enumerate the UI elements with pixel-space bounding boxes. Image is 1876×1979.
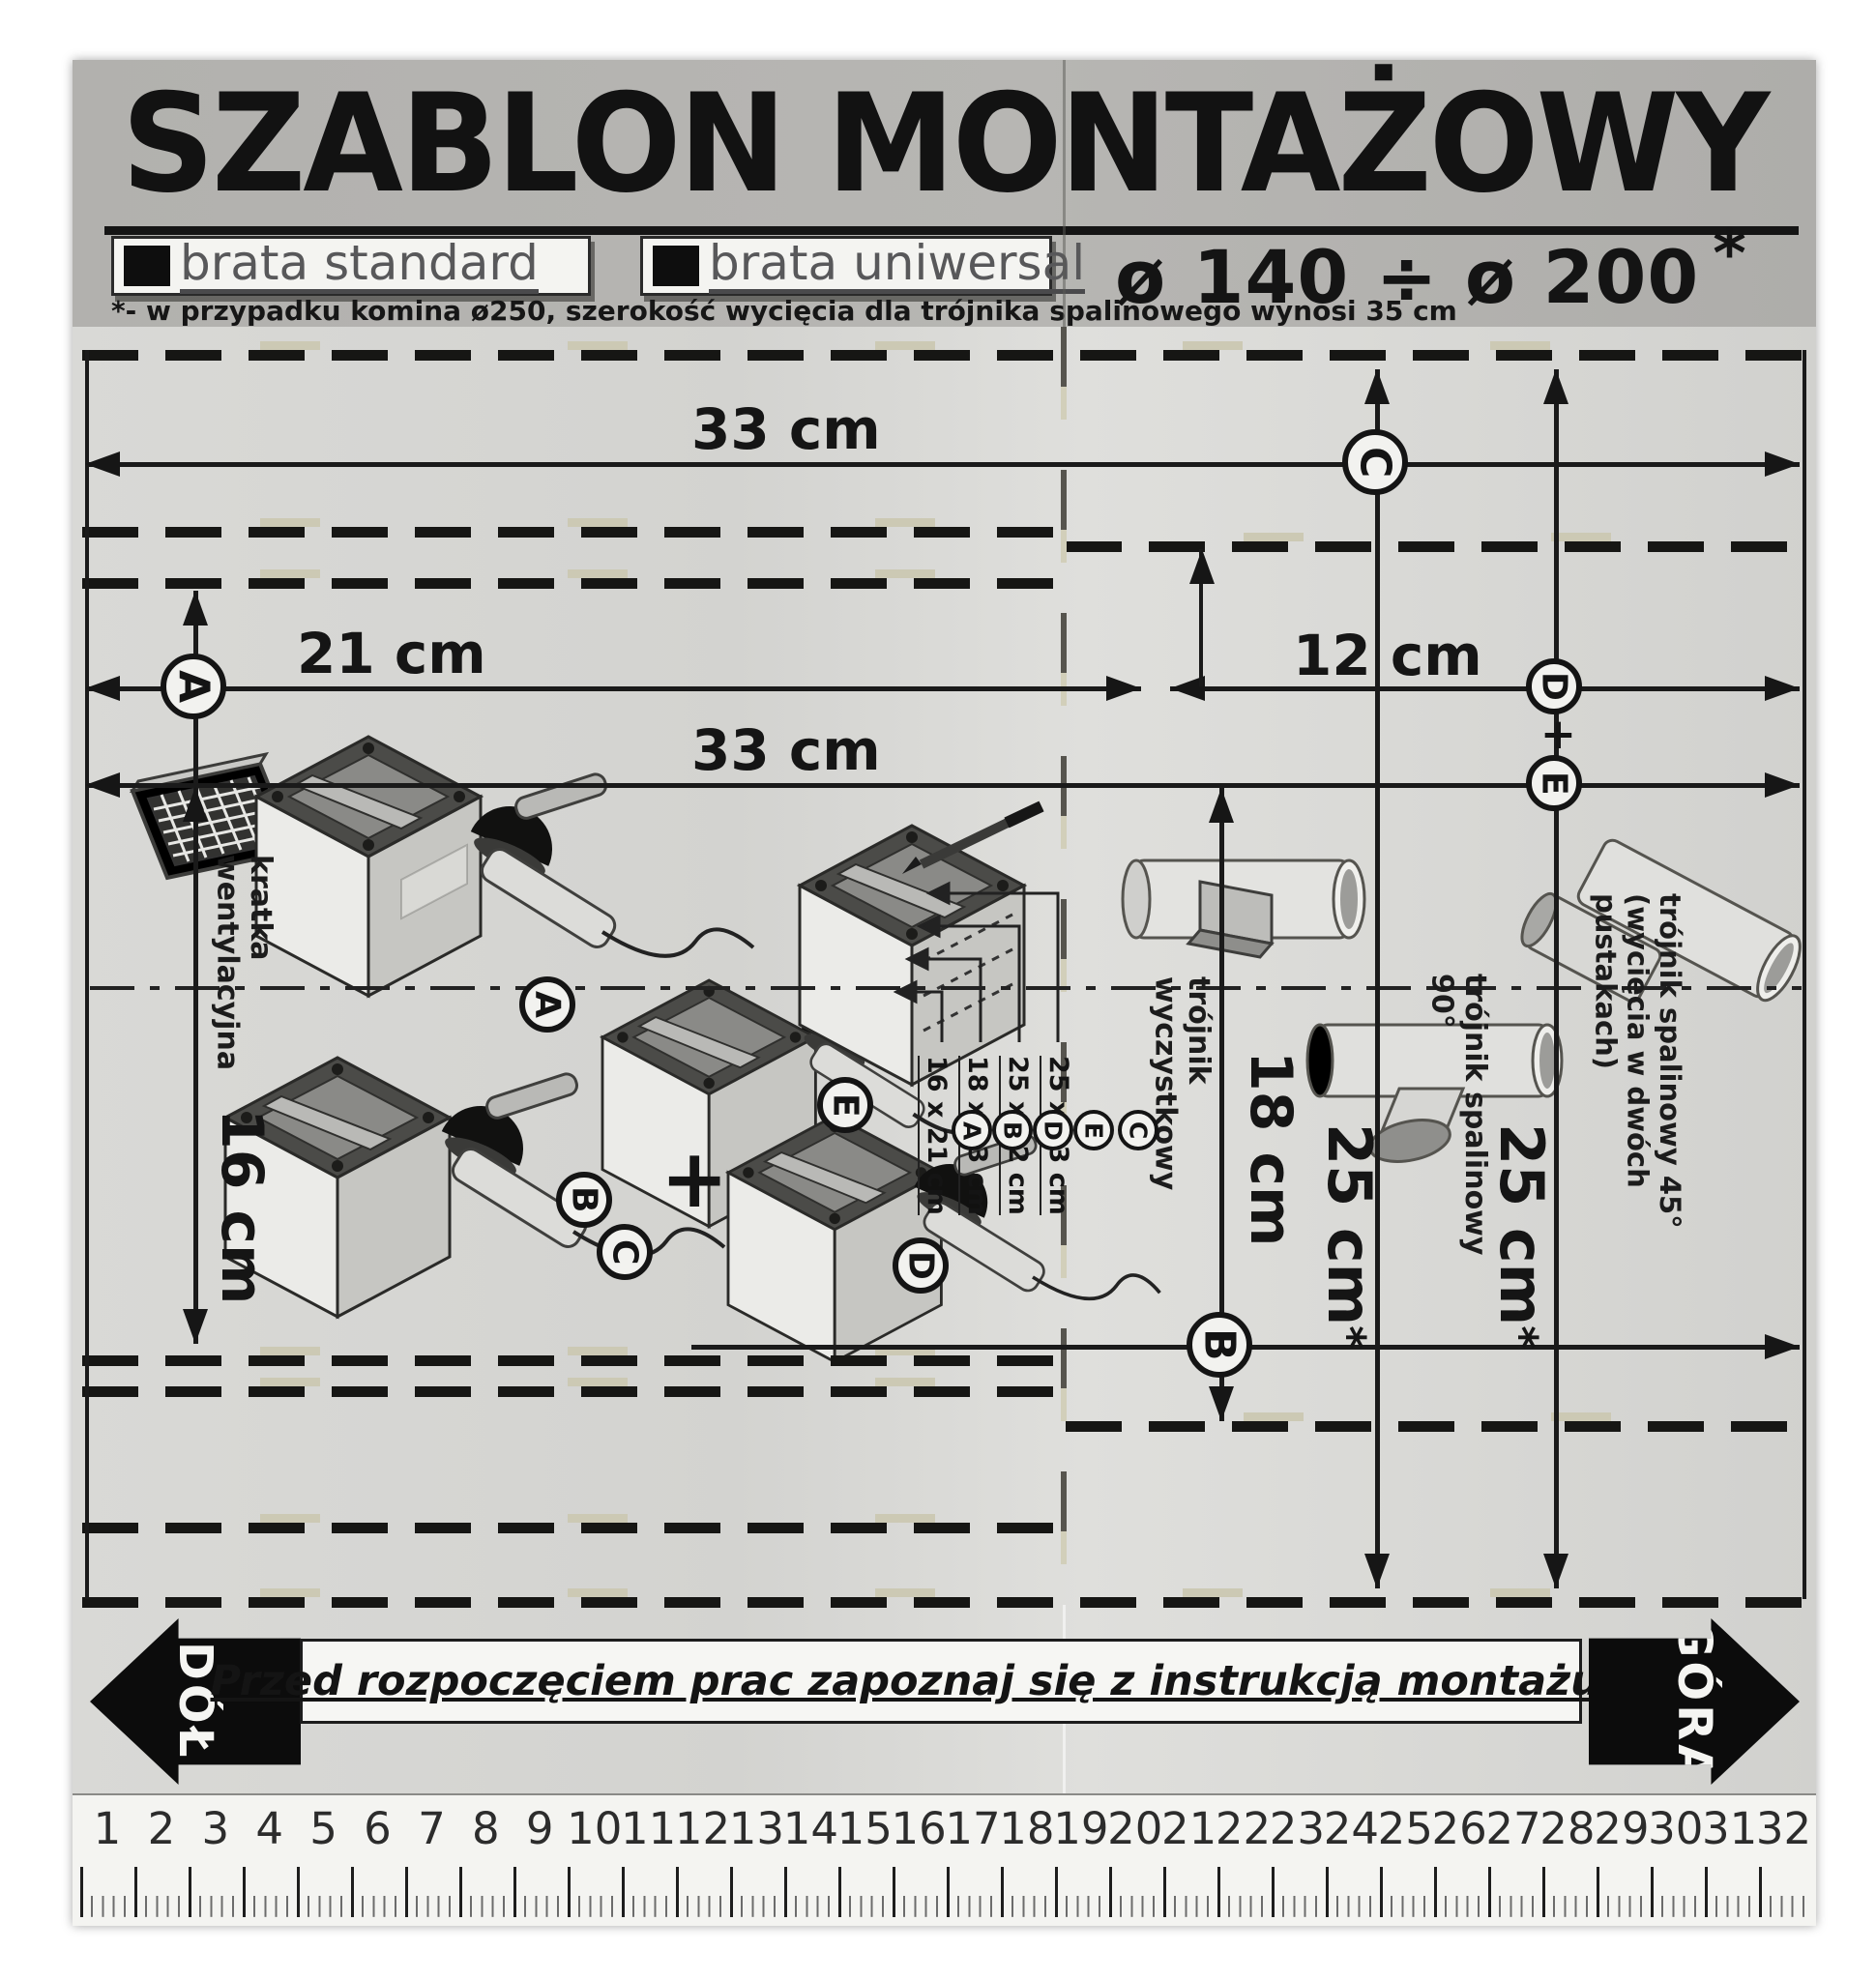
center-axis-line [90,986,1802,990]
ruler-number: 26 [1432,1803,1486,1854]
perforation-line [82,1386,1062,1397]
perforation-line [82,578,1062,589]
perforation-line [82,1523,1062,1533]
dim-flue45-height: 25 cm* [1486,1123,1557,1349]
ruler-number: 2 [134,1803,189,1854]
cut-line-de [1554,369,1559,1588]
block-a-illustration [256,737,481,996]
ruler-ticks [80,1867,1808,1917]
dim-left-width: 21 cm [297,621,486,686]
ruler-number: 8 [458,1803,513,1854]
brand-universal-box: brata uniwersal [640,236,1052,296]
ruler-number: 31 [1702,1803,1756,1854]
perforation-line [1066,1421,1806,1432]
dim-line-top33 [85,462,1800,467]
ruler-number: 23 [1270,1803,1324,1854]
dim-mid-width: 33 cm [691,717,881,783]
ruler-number: 27 [1485,1803,1539,1854]
dim-cleanout-height: 18 cm [1237,1051,1304,1246]
arrowhead [1209,1386,1234,1421]
fold-crease [1063,60,1066,327]
ruler-number: 29 [1594,1803,1648,1854]
ruler-number: 20 [1107,1803,1161,1854]
flue-tee-45-label: trójnik spalinowy 45° (wycięcia w dwóch … [1589,893,1685,1348]
marker-d: D [1526,658,1582,714]
diameter-star: * [1713,217,1747,291]
arrowhead [1765,1334,1800,1359]
arrowhead [1106,676,1141,701]
page-title: SZABLON MONTAŻOWY [73,68,1816,220]
perforation-line [82,527,1062,538]
arrowhead [85,451,120,477]
brand-square-icon [653,246,699,286]
ruler-number: 1 [80,1803,134,1854]
ruler-number: 19 [1053,1803,1107,1854]
arrowhead [85,772,120,798]
arrowhead [1765,676,1800,701]
arrowhead [1364,369,1390,404]
template-left-border [85,350,89,1599]
arrowhead [85,676,120,701]
illus-marker-plus: + [660,1131,728,1226]
ruler-number: 15 [837,1803,892,1854]
page: { "header": { "title": "SZABLON MONTAŻOW… [0,0,1876,1979]
ruler-number: 30 [1648,1803,1702,1854]
header: SZABLON MONTAŻOWY brata standard brata u… [73,60,1816,327]
warning-box: Przed rozpoczęciem prac zapoznaj się z i… [300,1639,1582,1724]
flue-tee-90-label: trójnik spalinowy 90° [1424,974,1491,1293]
perforation-line [82,1355,1062,1366]
table-marker-b: B [992,1110,1033,1150]
pencil-illustration [902,806,1041,874]
ruler-number: 6 [351,1803,405,1854]
brand-standard-box: brata standard [111,236,591,296]
leader-lines [896,884,1058,1042]
ruler-number: 17 [945,1803,999,1854]
ruler-number: 11 [621,1803,675,1854]
marker-b: B [1187,1312,1252,1378]
ruler-number: 5 [297,1803,351,1854]
arrowhead [1209,788,1234,823]
dim-vent-height: 16 cm [208,1109,276,1304]
illus-marker-c: C [597,1224,653,1280]
arrowhead [183,1309,208,1344]
illus-marker-d: D [893,1237,949,1294]
illus-marker-a: A [519,976,575,1033]
brand-standard-label: brata standard [180,238,539,294]
ruler-number: 12 [675,1803,729,1854]
ruler-number: 13 [729,1803,783,1854]
marker-e: E [1526,755,1582,811]
arrowhead [183,787,208,822]
template-right-border [1803,350,1806,1599]
dim-line-21 [85,686,1141,691]
ruler-number: 16 [892,1803,946,1854]
illus-marker-b: B [556,1172,612,1228]
fold-line [1061,327,1067,1605]
ruler-number: 10 [567,1803,621,1854]
ruler-number: 21 [1161,1803,1216,1854]
arrowhead [1765,772,1800,798]
ruler-number: 4 [243,1803,297,1854]
marker-a: A [161,654,226,719]
flue45-star: * [1495,1325,1547,1349]
flue-tee-45-note: (wycięcia w dwóch pustakach) [1589,893,1654,1188]
marker-plus: + [1540,710,1576,759]
arrowhead [1543,369,1568,404]
ruler-number: 7 [404,1803,458,1854]
ruler-number: 18 [999,1803,1053,1854]
arrowhead [1364,1554,1390,1588]
ruler-number: 25 [1378,1803,1432,1854]
perforation-line [82,350,1806,361]
arrowhead [183,591,208,626]
ruler-number: 3 [189,1803,243,1854]
ruler-number: 22 [1216,1803,1270,1854]
ruler-number: 24 [1324,1803,1378,1854]
arrowhead [1189,549,1215,584]
cleanout-tee-illustration [1123,860,1364,957]
brand-square-icon [124,246,170,286]
marker-c: C [1342,429,1408,495]
dim-top-width: 33 cm [691,396,881,462]
table-size-a: 16 x 21 cm [918,1056,952,1215]
footnote: *- w przypadku komina ø250, szerokość wy… [111,295,1465,327]
brand-universal-label: brata uniwersal [709,238,1085,294]
ruler-number: 14 [783,1803,837,1854]
dim-flue90-height: 25 cm* [1314,1123,1385,1349]
perforation-line [1066,541,1806,552]
table-marker-d: D [1033,1110,1073,1150]
dim-line-12 [1170,686,1800,691]
ruler: 1234567891011121314151617181920212223242… [73,1793,1816,1926]
template-photo: SZABLON MONTAŻOWY brata standard brata u… [73,60,1816,1926]
table-marker-c: C [1118,1110,1158,1150]
arrowhead [1765,451,1800,477]
flue90-star: * [1323,1325,1375,1349]
warning-text: Przed rozpoczęciem prac zapoznaj się z i… [210,1657,1671,1705]
arrowhead [1543,1554,1568,1588]
table-marker-e: E [1073,1110,1114,1150]
cut-line-c [1375,369,1380,1588]
dim-right-offset: 12 cm [1293,623,1482,688]
ruler-number: 28 [1539,1803,1594,1854]
table-marker-a: A [952,1110,992,1150]
vent-grille-label: kratka wentylacyjna [210,855,277,1101]
illus-marker-e: E [817,1077,873,1133]
ruler-number: 9 [513,1803,567,1854]
up-label: GÓRA [1667,1619,1721,1784]
grinder-a-illustration [470,771,753,955]
cut-table-row-a: A 16 x 21 cm [918,1046,992,1215]
ruler-number: 32 [1756,1803,1810,1854]
